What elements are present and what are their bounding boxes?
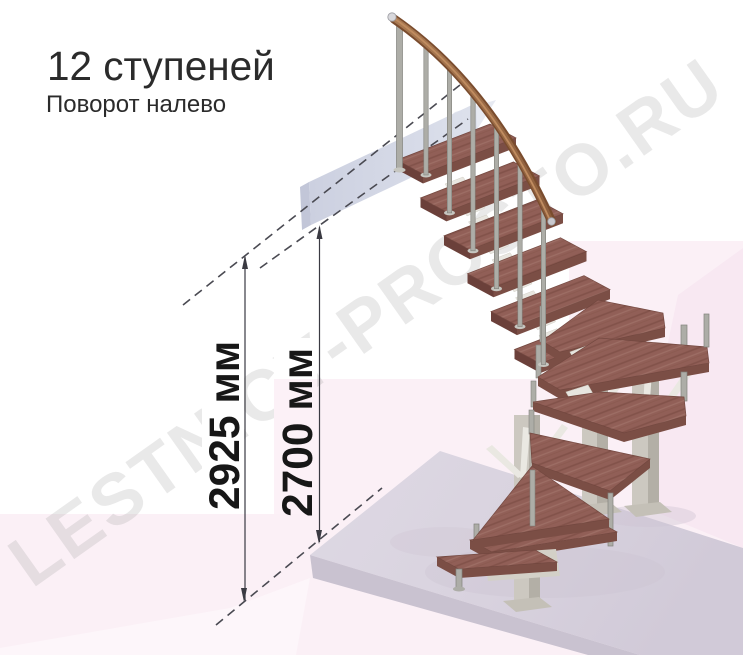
svg-text:2700 мм: 2700 мм — [275, 348, 322, 517]
svg-text:Поворот налево: Поворот налево — [46, 91, 226, 118]
svg-text:2925 мм: 2925 мм — [202, 341, 249, 510]
svg-text:12 ступеней: 12 ступеней — [47, 43, 275, 89]
